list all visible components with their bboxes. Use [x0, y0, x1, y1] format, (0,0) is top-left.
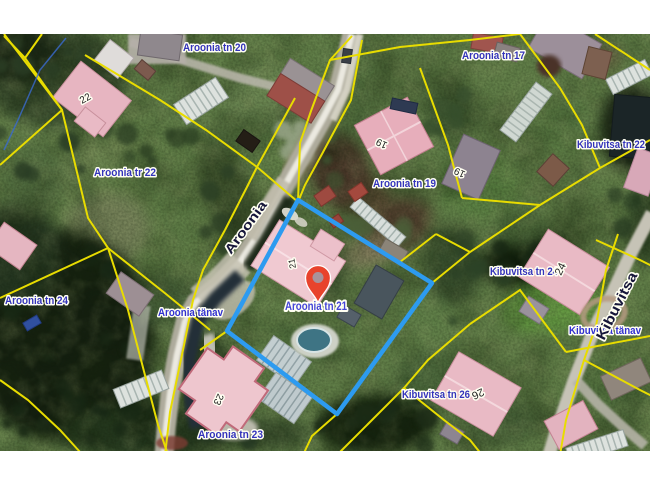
svg-text:21: 21 [286, 258, 298, 270]
svg-text:Kibuvitsa tn 24: Kibuvitsa tn 24 [490, 266, 559, 278]
svg-text:Aroonia tn 23: Aroonia tn 23 [198, 429, 263, 441]
svg-text:Aroonia tn 24: Aroonia tn 24 [5, 295, 69, 307]
svg-text:Kibuvitsa tn 22: Kibuvitsa tn 22 [577, 139, 645, 151]
svg-text:Aroonia tn 20: Aroonia tn 20 [183, 42, 246, 54]
svg-text:Aroonia tn 17: Aroonia tn 17 [462, 50, 525, 62]
svg-text:Kibuvitsa tn 26: Kibuvitsa tn 26 [402, 389, 470, 401]
svg-text:Aroonia tn 21: Aroonia tn 21 [285, 299, 347, 313]
svg-text:Aroonia tr 22: Aroonia tr 22 [94, 167, 156, 179]
svg-text:Aroonia tn 19: Aroonia tn 19 [373, 178, 436, 190]
svg-text:Aroonia tänav: Aroonia tänav [158, 307, 224, 319]
